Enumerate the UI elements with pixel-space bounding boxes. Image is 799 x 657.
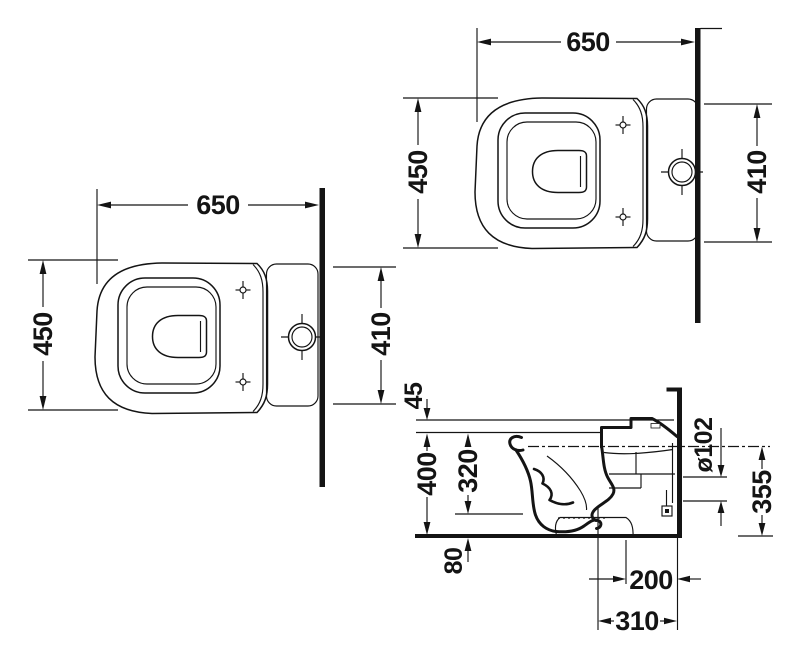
bowl-back-inner [592,446,614,521]
wall-line [320,188,326,487]
dim-400: 400 [412,434,442,536]
arrow-right-icon [664,618,677,624]
arrow-up-icon [415,98,422,112]
arrow-down-icon [415,234,422,248]
rim-front [510,436,523,450]
outlet-connector-core [665,509,669,513]
arrow-up-icon [718,501,725,513]
arrow-down-icon [40,396,47,410]
arrow-right-icon [681,39,695,46]
dim-410-left: 410 [333,267,396,404]
dim-label: 410 [366,312,396,356]
dim-label: 45 [400,382,428,409]
dim-80: 80 [440,538,471,574]
plan-view-left: 650 450 410 [28,188,396,487]
arrow-down-icon [754,228,761,242]
arrow-down-icon [424,522,431,535]
dim-label: 200 [629,565,673,595]
arrow-left-icon [477,39,491,46]
dim-label: 650 [566,27,610,57]
arrow-down-icon [424,408,431,420]
dim-650-right: 650 [477,27,695,122]
dim-355: 355 [747,447,777,537]
wc-technical-drawing: 650 450 410 [0,0,799,657]
arrow-right-icon [305,202,319,209]
plan-view-right: 650 450 410 [403,27,772,323]
toilet-section-profile [510,419,677,538]
side-view: 45 400 320 80 ø102 [400,382,777,636]
dim-label: 450 [28,312,58,356]
arrow-up-icon [759,447,766,461]
floor-line [415,534,682,538]
arrow-left-icon [598,618,611,624]
technical-drawing-page: 650 450 410 [0,0,799,657]
arrow-up-icon [424,434,431,448]
arrow-up-icon [754,104,761,118]
dim-200: 200 [589,565,701,595]
arrow-down-icon [465,501,472,514]
dim-650-left: 650 [97,189,319,284]
arrow-right-icon [613,576,626,582]
dim-410-right: 410 [704,104,772,242]
arrow-down-icon [378,390,385,404]
dim-label: 450 [403,150,433,194]
arrow-up-icon [40,260,47,274]
dim-102: ø102 [690,418,724,526]
outlet-channel [609,474,675,488]
arrow-down-icon [718,465,725,477]
arrow-up-icon [378,267,385,281]
dim-label: ø102 [690,418,718,473]
arrow-up-icon [465,434,472,448]
dim-45: 45 [400,382,430,420]
seat-and-cistern-top [602,419,678,448]
dim-450-left: 450 [28,260,118,410]
arrow-down-icon [759,523,766,536]
dim-label: 410 [742,150,772,194]
wall-line [695,28,701,323]
dim-label: 80 [440,548,468,575]
dim-label: 650 [196,190,240,220]
arrow-left-icon [97,202,111,209]
under-seat-line [604,450,673,454]
dim-label: 355 [747,470,777,514]
dim-310: 310 [598,606,677,636]
dim-label: 320 [453,449,483,493]
dim-320: 320 [453,434,483,515]
dim-label: 310 [615,606,659,636]
arrow-left-icon [677,576,690,582]
cistern-top-notch [651,424,660,429]
dim-label: 400 [412,452,442,496]
